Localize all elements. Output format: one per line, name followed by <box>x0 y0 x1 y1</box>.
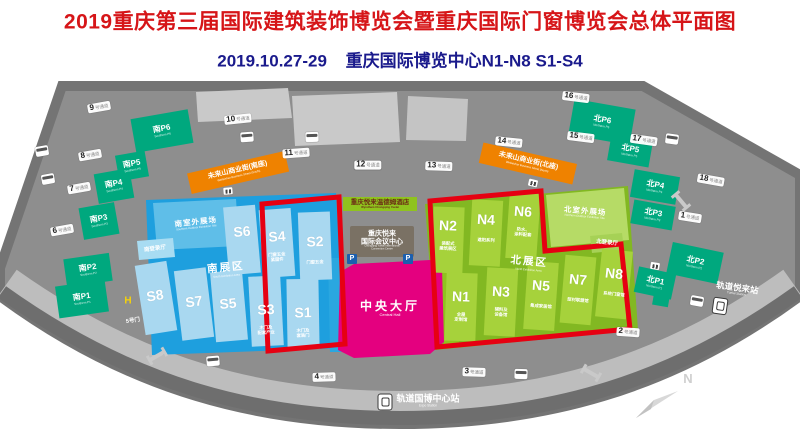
compass-n-label: N <box>683 372 692 386</box>
parking-p-icon: P <box>347 254 357 264</box>
hall-sublabel-N1: 全屋定制馆 <box>454 312 467 323</box>
parking-label-北P3: 北P3Northern P3 <box>643 207 663 222</box>
hall-label-S6: S6 <box>233 224 251 241</box>
escalator-icon <box>149 350 165 361</box>
gate-label-1: 1号通道 <box>678 211 702 223</box>
expo-floorplan: 2019重庆第三届国际建筑装饰博览会暨重庆国际门窗博览会总体平面图 2019.1… <box>0 0 800 432</box>
hall-label-S7: S7 <box>185 293 204 310</box>
gate-label-18: 18号通道 <box>697 173 726 186</box>
gate-label-14: 14号通道 <box>495 136 523 148</box>
parking-label-南P1: 南P1Southern P1 <box>72 292 91 306</box>
gate-label-8: 8号通道 <box>78 149 102 162</box>
bus-stop-icon <box>41 173 56 185</box>
parking-label-北P5: 北P5Northern P5 <box>620 143 640 158</box>
hall-label-N4: N4 <box>477 212 496 228</box>
hall-label-N5: N5 <box>532 278 551 295</box>
zone-label-south: 南展区 South Exhibition Area <box>207 261 246 279</box>
street-label-north: 未来山商业街(北座) Weilaishan Business Street (N… <box>497 151 559 175</box>
escalator-icon <box>674 194 687 209</box>
gate-label-11: 11号通道 <box>282 148 310 159</box>
bus-stop-icon <box>206 355 220 366</box>
hall-label-S8: S8 <box>145 287 164 305</box>
hall-sublabel-S2: 门窗五金 <box>306 259 323 265</box>
metro-icon <box>711 297 728 316</box>
central-hall-label: 中央大厅 Central Hall <box>360 300 420 318</box>
restroom-icon <box>223 187 233 195</box>
subtitle-venue: 重庆国际博览中心N1-N8 S1-S4 <box>346 52 583 71</box>
gate-label-7: 7号通道 <box>67 182 91 195</box>
escalator-icon <box>583 367 599 378</box>
gate-label-12: 12号通道 <box>354 161 381 170</box>
station-label-yuelai: 轨道悦来站 Yuelai Station <box>715 281 759 300</box>
gate-label-4: 4号通道 <box>312 372 335 382</box>
bus-stop-icon <box>240 132 254 143</box>
convention-center-label: 重庆悦来 国际会议中心 Chongqing Yuelai Internation… <box>361 230 403 251</box>
gate-label-3: 3号通道 <box>462 367 485 377</box>
hall-label-N8: N8 <box>604 265 623 282</box>
hall-sublabel-N8: 系统门窗馆 <box>603 290 625 297</box>
gate-label-16: 16号通道 <box>562 91 590 103</box>
metro-icon <box>378 394 393 411</box>
parking-label-北P6: 北P6Northern P6 <box>592 114 612 129</box>
parking-p-icon: P <box>403 254 413 264</box>
heliport-h-marker: H <box>124 296 131 307</box>
hall-sublabel-N5: 集成家居馆 <box>530 303 552 310</box>
hall-sublabel-N2: 装配式建筑展区 <box>439 241 457 252</box>
hall-label-N1: N1 <box>452 289 470 305</box>
bus-stop-icon <box>514 369 527 379</box>
gate-label-10: 10号通道 <box>224 113 252 125</box>
hall-label-S3: S3 <box>257 302 275 318</box>
parking-label-北P4: 北P4Northern P4 <box>645 179 665 194</box>
gate-label-15: 15号通道 <box>567 131 595 143</box>
parking-label-南P6: 南P6Southern P6 <box>152 123 172 138</box>
hall-sublabel-S4: 门窗五金紧固件 <box>268 251 286 262</box>
hotel-label: 重庆悦来温德姆酒店 Wyndham Chongqing Yuelai <box>351 199 410 209</box>
gate-label-2: 2号通道 <box>616 327 640 337</box>
hall-sublabel-N4: 遮阳系列 <box>477 237 494 243</box>
parking-label-南P3: 南P3Southern P3 <box>89 213 109 228</box>
hall-label-N7: N7 <box>568 272 587 289</box>
street-label-south: 未来山商业街(南座) Weilaishan Business Street (S… <box>207 160 269 184</box>
registration-label-south: 南登录厅 <box>144 244 167 253</box>
zone-label-north: 北展区 North Exhibition Area <box>510 255 549 273</box>
parking-label-南P4: 南P4Southern P4 <box>104 178 124 193</box>
hall-sublabel-N7: 型材联盟馆 <box>567 296 589 303</box>
hall-label-S4: S4 <box>268 229 286 246</box>
hall-sublabel-S1: 木门及套装门 <box>296 328 309 339</box>
page-subtitle: 2019.10.27-29 重庆国际博览中心N1-N8 S1-S4 <box>210 53 590 72</box>
hall-sublabel-N3: 辅料及设备馆 <box>494 307 507 318</box>
hall-label-N6: N6 <box>514 204 533 221</box>
restroom-icon <box>650 262 660 270</box>
hall-label-S5: S5 <box>219 296 237 313</box>
parking-label-南P5: 南P5Southern P5 <box>122 158 142 173</box>
gate-label-9: 9号通道 <box>87 101 111 114</box>
bus-stop-icon <box>690 295 705 307</box>
page-title: 2019重庆第三届国际建筑装饰博览会暨重庆国际门窗博览会总体平面图 <box>64 10 736 33</box>
bus-stop-icon <box>665 133 679 145</box>
parking-label-北P1: 北P1Northern P1 <box>645 275 665 291</box>
registration-label-north: 北登录厅 <box>596 239 619 247</box>
station-label-expo: 轨道国博中心站 Expo Station <box>396 394 459 407</box>
hall-label-S2: S2 <box>306 234 324 250</box>
outdoor-label-south: 南室外展场 Southern Outdoor Exhibition Site <box>174 216 217 232</box>
hall-label-S1: S1 <box>294 305 311 321</box>
hall-label-N3: N3 <box>492 284 511 300</box>
outdoor-label-north: 北室外展场 Northern Outdoor Exhibition Site <box>563 206 606 221</box>
gate-label-6: 6号通道 <box>50 224 74 237</box>
subtitle-date: 2019.10.27-29 <box>217 52 327 71</box>
gate-label-5: 5号门 <box>126 317 141 325</box>
bus-stop-icon <box>305 132 318 142</box>
hall-sublabel-S3: 木门及配套产业 <box>257 324 275 335</box>
restroom-icon <box>528 179 538 188</box>
hall-sublabel-N6: 防水、涂料配套 <box>514 226 532 237</box>
bus-stop-icon <box>35 145 50 157</box>
parking-label-北P2: 北P2Northern P2 <box>685 255 705 271</box>
gate-label-13: 13号通道 <box>425 161 453 171</box>
hall-label-N2: N2 <box>439 218 457 234</box>
parking-label-南P2: 南P2Southern P2 <box>78 263 97 277</box>
